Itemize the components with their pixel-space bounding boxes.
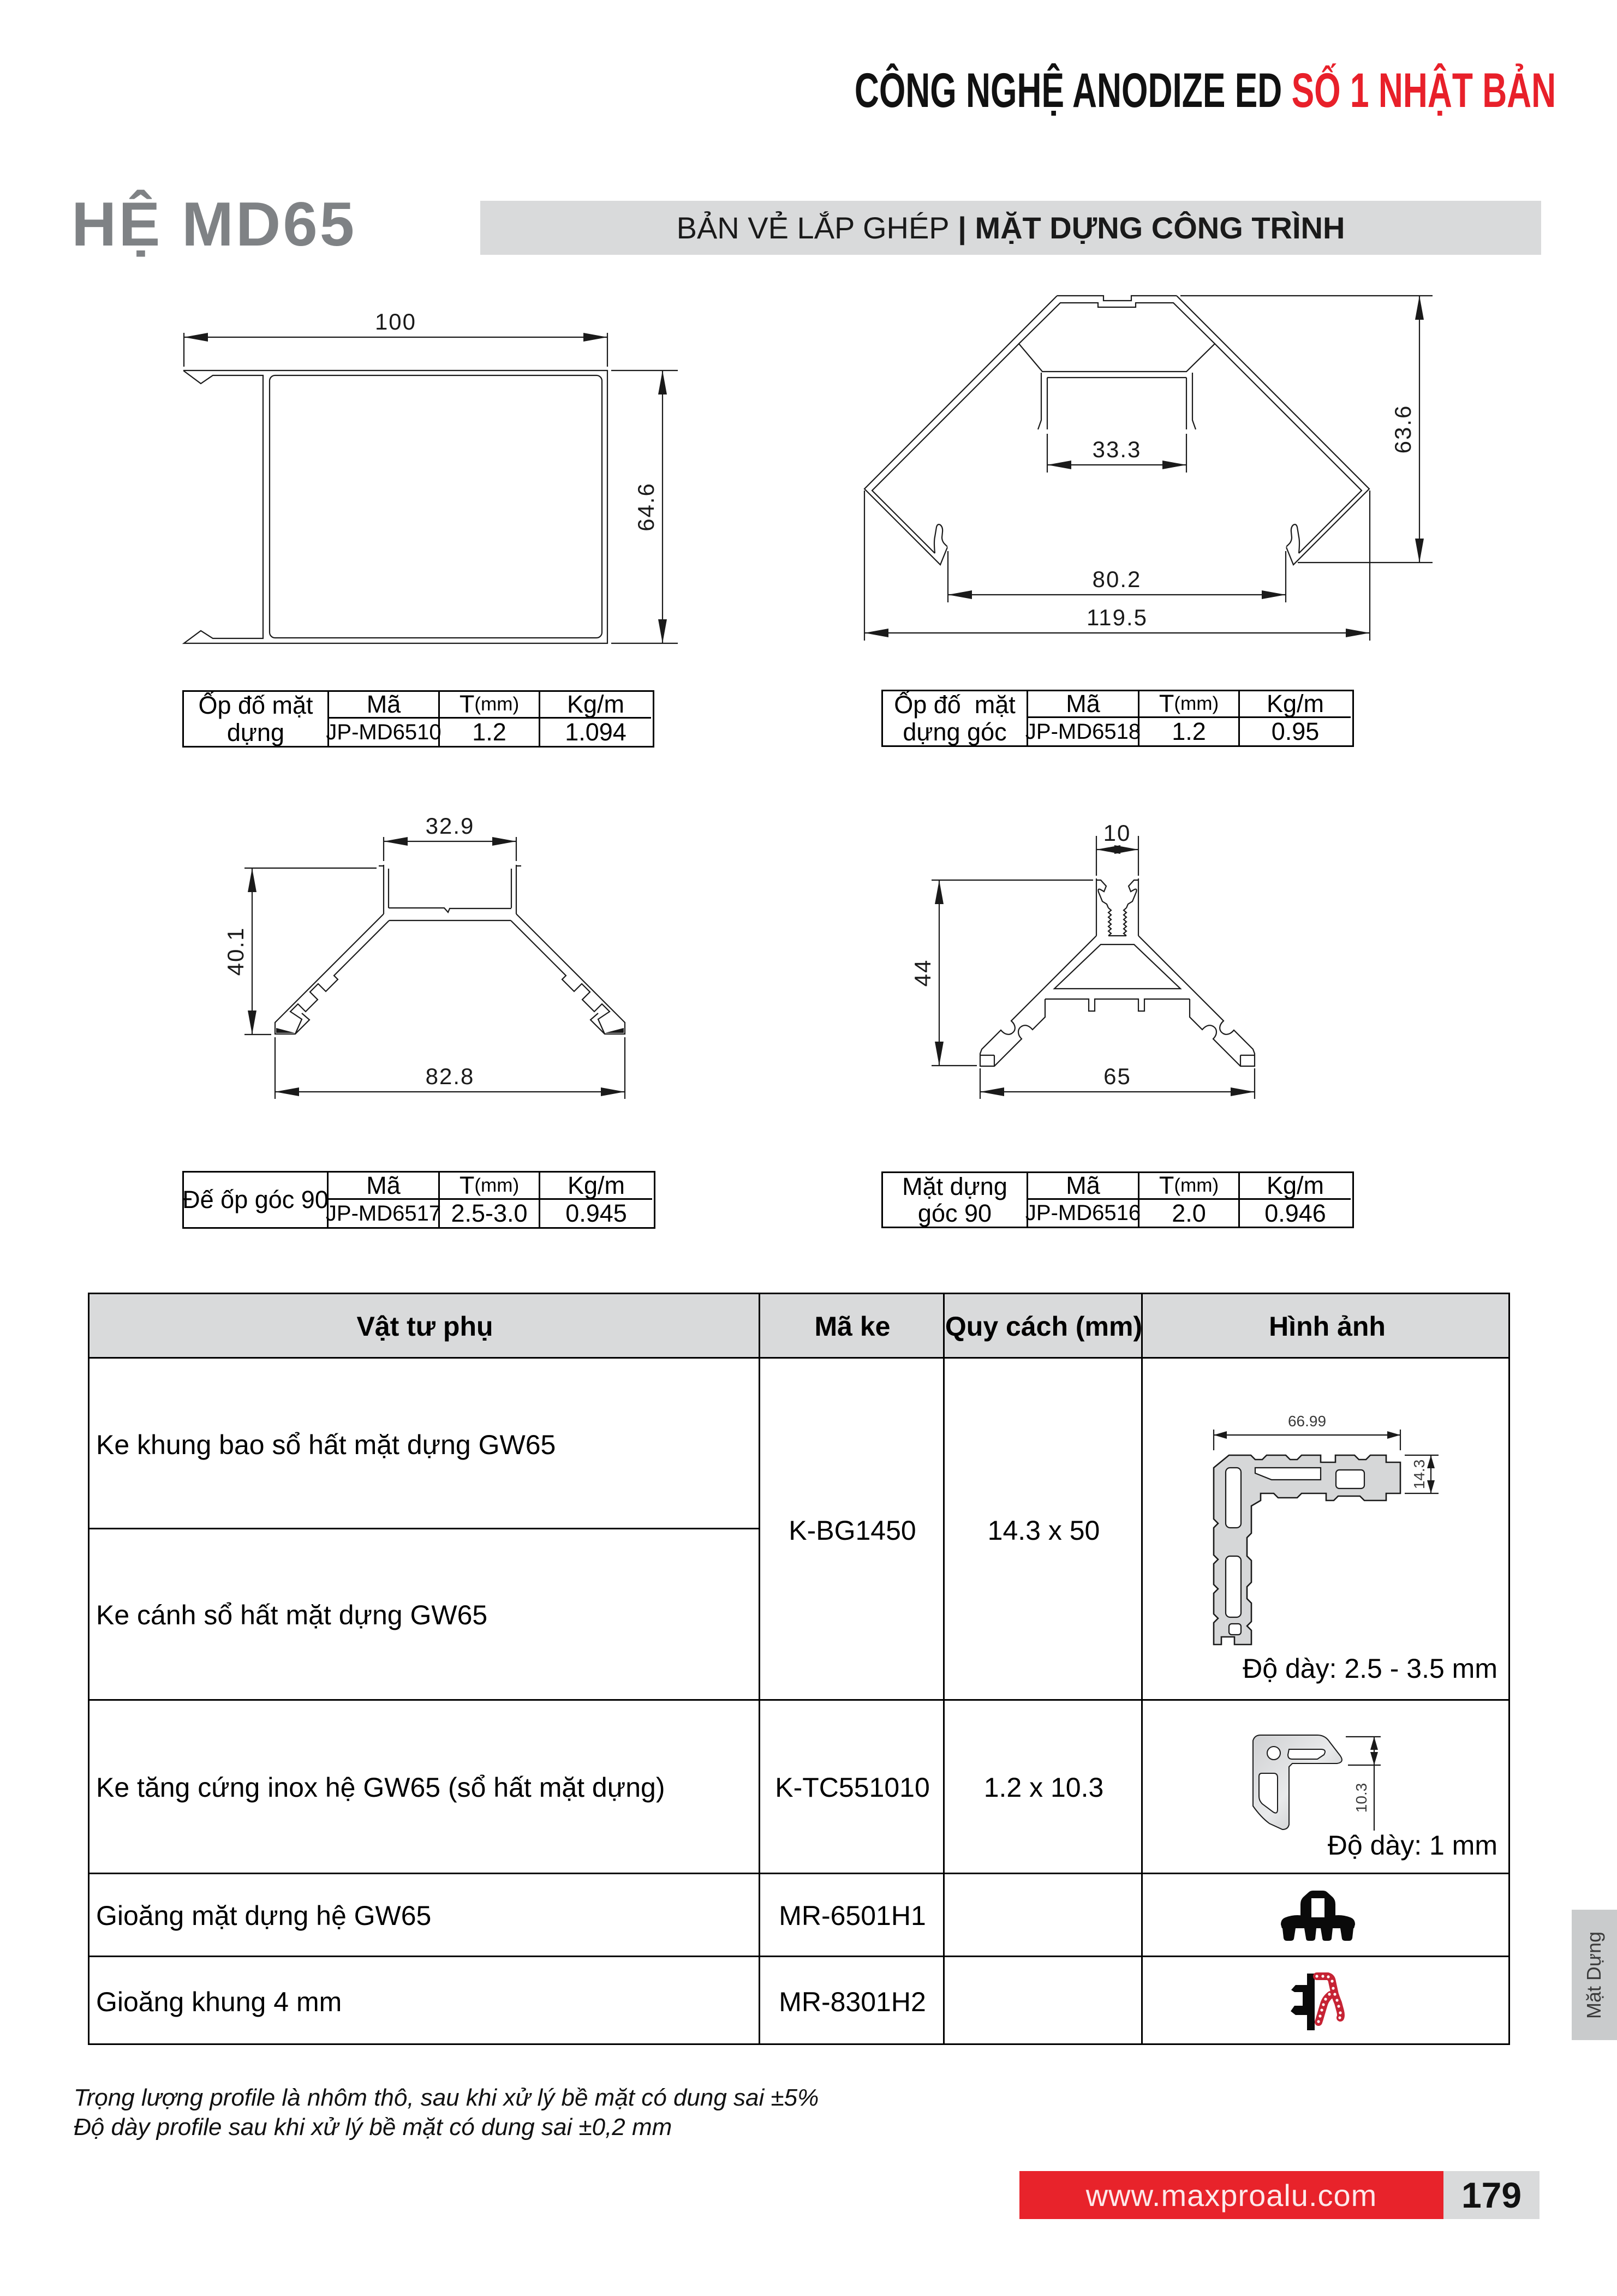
svg-text:40.1: 40.1 [223, 927, 248, 976]
svg-text:63.6: 63.6 [1390, 405, 1416, 454]
svg-text:10: 10 [1103, 820, 1131, 846]
svg-text:100: 100 [375, 309, 416, 334]
svg-text:119.5: 119.5 [1087, 605, 1148, 630]
svg-text:65: 65 [1103, 1063, 1131, 1089]
svg-text:32.9: 32.9 [426, 813, 475, 839]
svg-text:33.3: 33.3 [1093, 437, 1142, 462]
svg-text:82.8: 82.8 [426, 1063, 475, 1089]
svg-text:80.2: 80.2 [1093, 566, 1142, 592]
svg-text:64.6: 64.6 [633, 482, 659, 531]
svg-text:44: 44 [910, 959, 935, 987]
